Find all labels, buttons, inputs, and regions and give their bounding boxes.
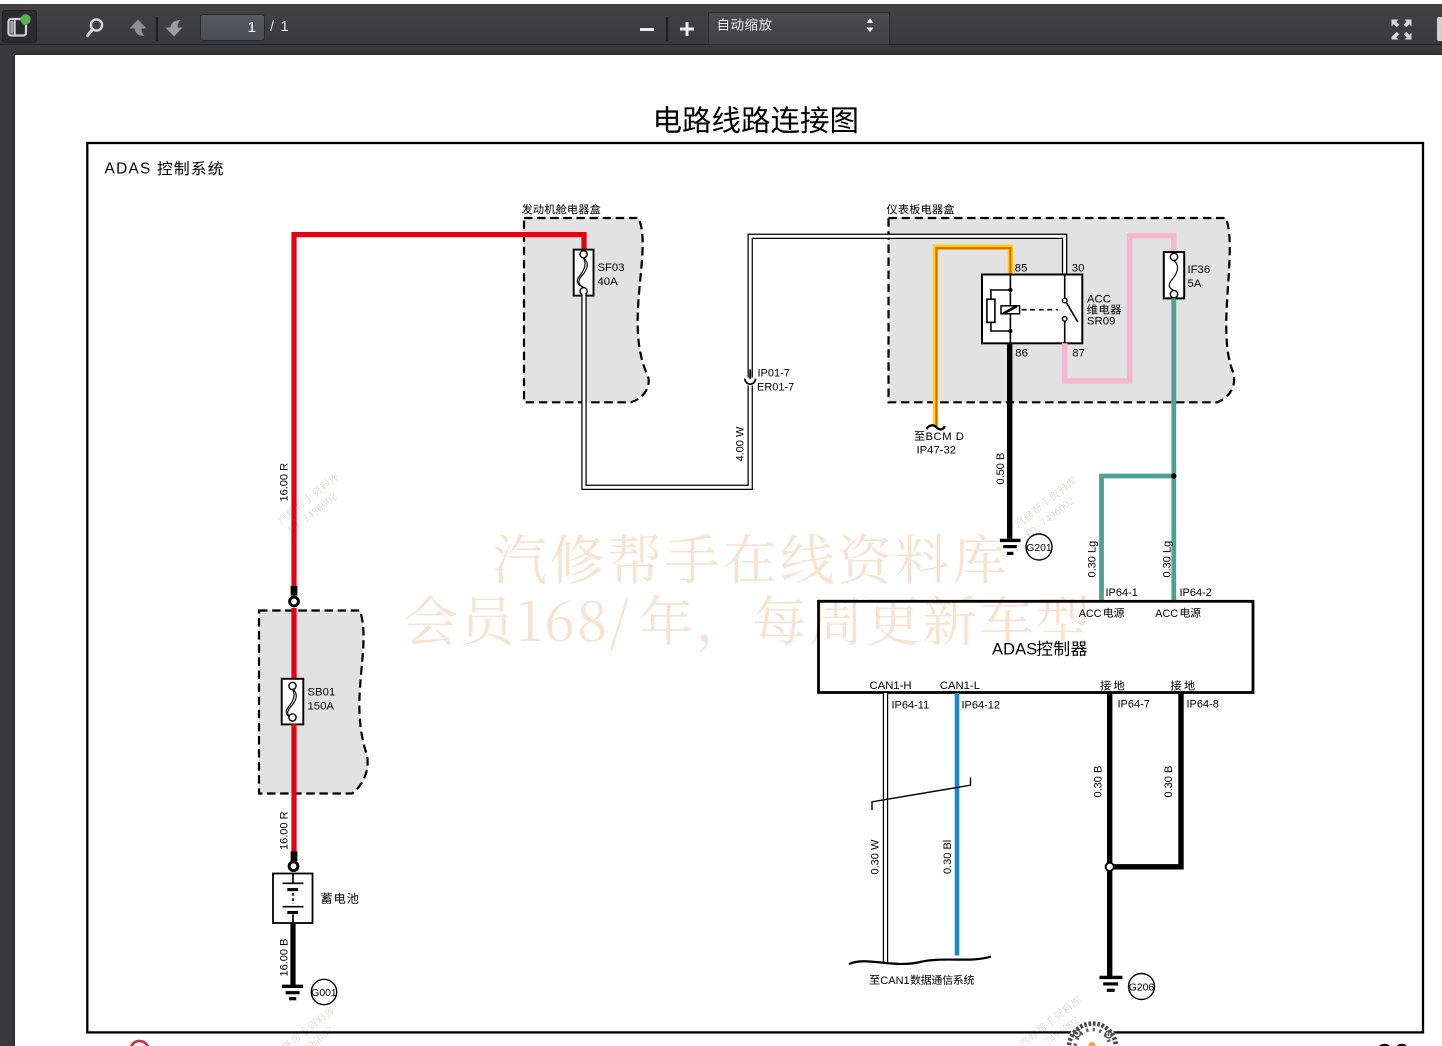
svg-text:4.00 W: 4.00 W <box>735 426 747 461</box>
svg-text:0.30 B: 0.30 B <box>1093 766 1105 798</box>
svg-text:IP64-7: IP64-7 <box>1118 699 1150 711</box>
svg-text:IP64-11: IP64-11 <box>892 699 930 711</box>
svg-text:90: 90 <box>1377 1038 1411 1046</box>
svg-text:SF03: SF03 <box>598 262 625 274</box>
svg-text:ACC: ACC <box>1087 293 1111 305</box>
svg-text:CAN1-L: CAN1-L <box>940 680 980 692</box>
svg-text:ADAS: ADAS <box>105 161 152 178</box>
svg-text:CAN1: CAN1 <box>880 975 909 987</box>
svg-text:G001: G001 <box>311 988 337 999</box>
svg-text:40A: 40A <box>598 276 619 288</box>
svg-text:85: 85 <box>1015 262 1028 274</box>
svg-text:86: 86 <box>1015 347 1028 359</box>
svg-text:16.00 R: 16.00 R <box>279 811 291 850</box>
svg-text:87: 87 <box>1072 347 1085 359</box>
svg-text:ADAS: ADAS <box>992 641 1037 659</box>
svg-text:IF36: IF36 <box>1188 264 1211 276</box>
svg-text:CAN1-H: CAN1-H <box>870 680 912 692</box>
svg-text:5A: 5A <box>1188 278 1202 290</box>
svg-text:0.30 Bl: 0.30 Bl <box>942 840 954 874</box>
svg-text:IP64-1: IP64-1 <box>1106 587 1138 599</box>
svg-text:IP64-8: IP64-8 <box>1187 699 1219 711</box>
svg-text:0.30 Lg: 0.30 Lg <box>1161 541 1173 578</box>
svg-text:IP64-2: IP64-2 <box>1180 587 1212 599</box>
svg-text:16.00 R: 16.00 R <box>279 463 291 502</box>
svg-text:ACC: ACC <box>1155 608 1178 620</box>
svg-text:30: 30 <box>1072 262 1085 274</box>
svg-text:SB01: SB01 <box>308 687 336 699</box>
svg-text:IP47-32: IP47-32 <box>917 444 957 456</box>
svg-text:0.30 Lg: 0.30 Lg <box>1087 541 1099 578</box>
svg-text:0.50 B: 0.50 B <box>995 453 1007 485</box>
svg-text:SR09: SR09 <box>1087 315 1115 327</box>
svg-text:ACC: ACC <box>1079 608 1102 620</box>
svg-text:IP01-7: IP01-7 <box>758 367 790 379</box>
svg-text:16.00 B: 16.00 B <box>279 939 291 977</box>
svg-text:ER01-7: ER01-7 <box>757 381 794 393</box>
svg-text:IP64-12: IP64-12 <box>962 699 1001 711</box>
svg-text:0.30 B: 0.30 B <box>1163 766 1175 798</box>
svg-text:150A: 150A <box>308 701 335 713</box>
svg-text:G206: G206 <box>1129 982 1155 993</box>
svg-text:G201: G201 <box>1026 543 1052 554</box>
svg-text:BCM D: BCM D <box>926 431 965 443</box>
svg-text:0.30 W: 0.30 W <box>870 839 882 874</box>
